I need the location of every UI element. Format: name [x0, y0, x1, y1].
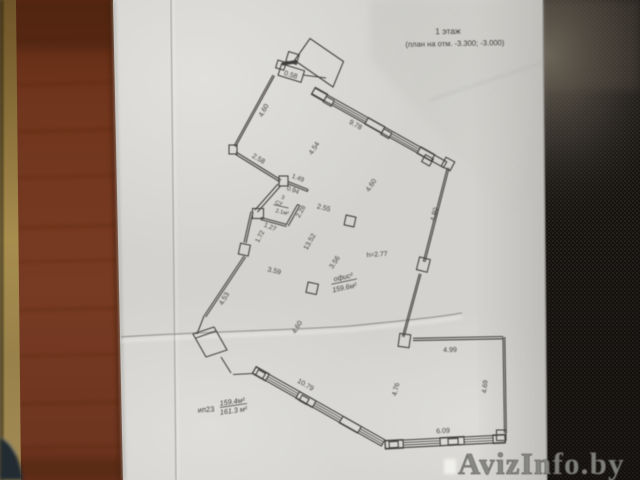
- svg-text:ип23: ип23: [197, 404, 214, 414]
- svg-text:AvizInfo.by: AvizInfo.by: [458, 446, 625, 480]
- svg-text:(план на отм. -3.300; -3.000): (план на отм. -3.300; -3.000): [405, 38, 505, 49]
- svg-text:4.69: 4.69: [481, 380, 489, 394]
- svg-text:1 этаж: 1 этаж: [435, 26, 461, 36]
- svg-text:4.99: 4.99: [443, 347, 457, 354]
- svg-text:h=2.77: h=2.77: [366, 251, 388, 259]
- svg-text:6.09: 6.09: [436, 428, 450, 436]
